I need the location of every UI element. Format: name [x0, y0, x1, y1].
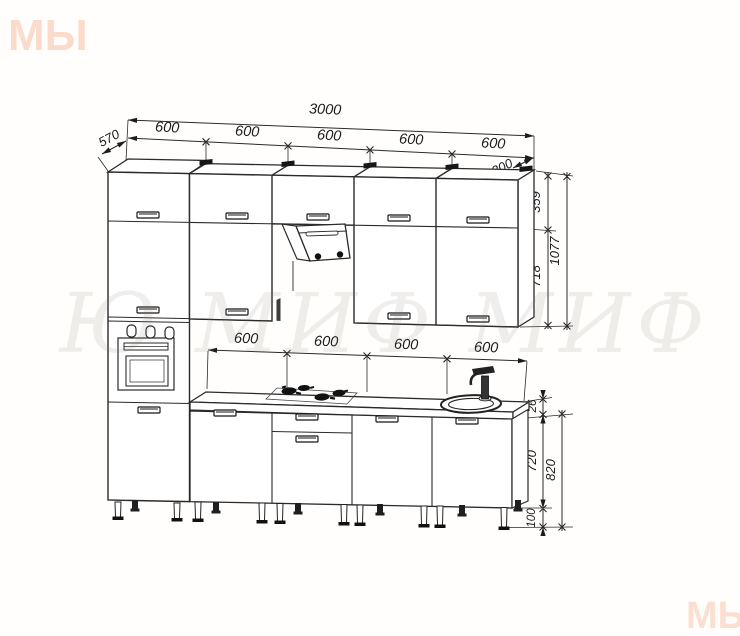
handle-base2-drawer: [296, 414, 318, 420]
handle-hood-door: [307, 214, 329, 220]
dim-leg-height: 100: [526, 508, 538, 528]
dim-top-600-4: 600: [399, 131, 424, 148]
base-right-side-panel: [512, 410, 528, 509]
handle-base2-door: [296, 436, 318, 442]
hood-knob-right: [337, 251, 343, 257]
kitchen-elevation-drawing: 3000 600 600 600 600 600 570 300 359 718…: [0, 0, 740, 636]
dim-top-600-2: 600: [235, 123, 260, 140]
dim-wall-height: 1077: [547, 236, 562, 266]
handle-base4-door: [456, 418, 478, 424]
watermark-logo-bottom-right: МЫ: [686, 595, 740, 636]
dim-total-width: 3000: [309, 101, 342, 118]
hood-knob-left: [315, 253, 321, 259]
base-cabinets-front: [190, 411, 512, 508]
handle-wall4-top-door: [388, 215, 410, 221]
handle-tall-top-door: [137, 212, 159, 218]
handle-base1-door: [214, 410, 236, 416]
hood-vent-slot: [306, 231, 338, 236]
handle-base3-door: [376, 416, 398, 422]
dim-top-600-1: 600: [155, 119, 180, 136]
drawing-svg: 3000 600 600 600 600 600 570 300 359 718…: [0, 0, 740, 636]
handle-tall-base-door: [138, 407, 160, 413]
handle-wall2-top-door: [226, 213, 248, 219]
handle-wall5-top-door: [467, 217, 489, 223]
dim-base-total: 820: [543, 458, 558, 480]
watermark-logo-top-left: МЫ: [8, 11, 88, 60]
dim-top-600-3: 600: [317, 127, 342, 144]
dim-top-600-5: 600: [481, 135, 506, 152]
sink: [441, 394, 501, 413]
watermark-center-text: Ю МИФ МИФ: [57, 277, 710, 372]
